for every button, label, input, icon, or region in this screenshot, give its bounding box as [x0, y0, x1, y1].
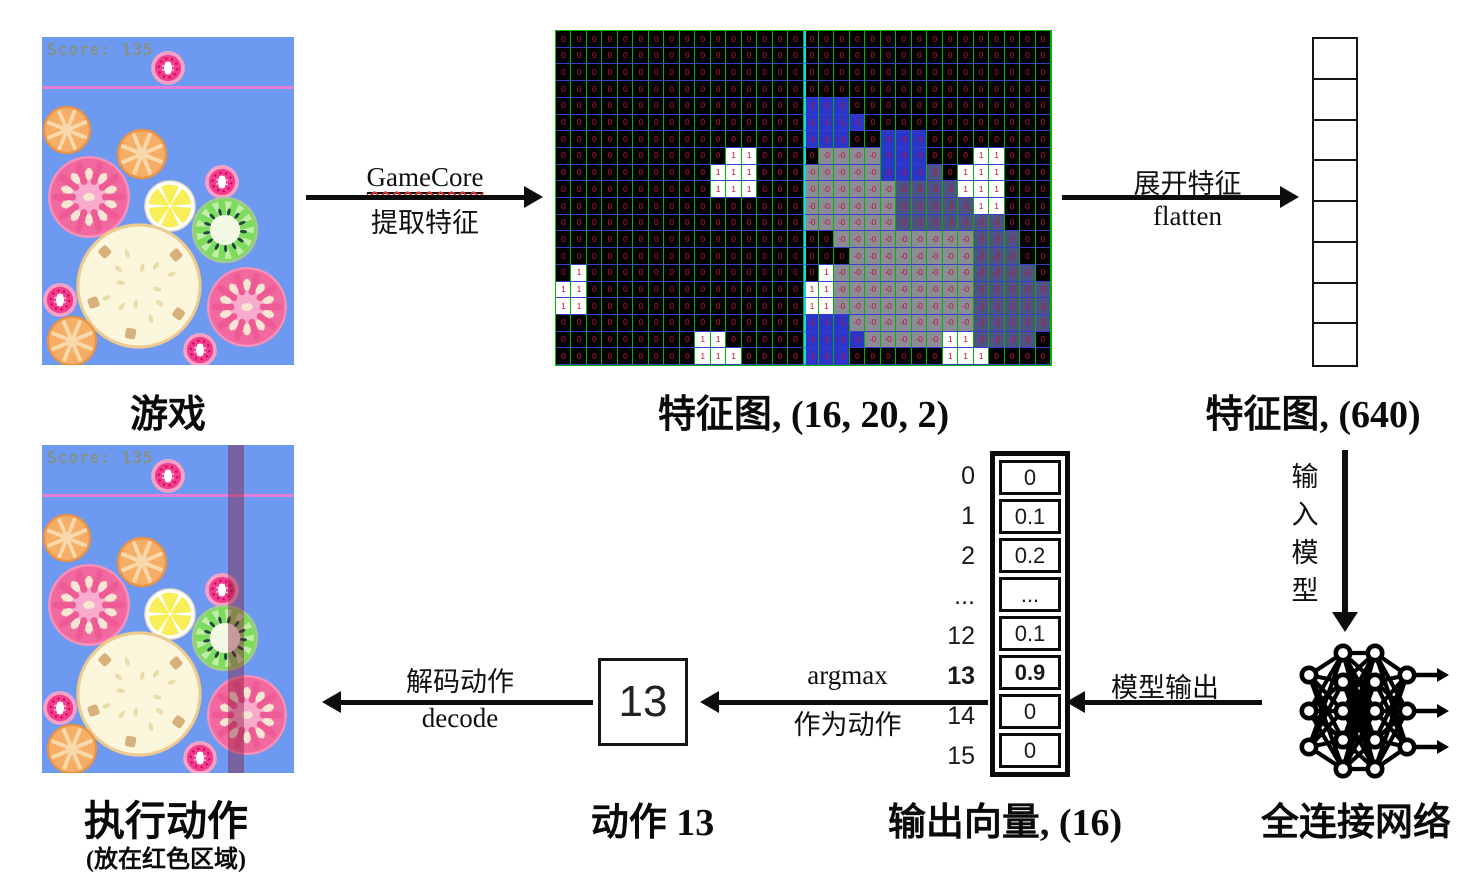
- feature-cell: 1: [571, 298, 586, 315]
- feature-cell: 0: [726, 248, 741, 265]
- feature-cell: -2: [989, 332, 1004, 349]
- feature-cell: 0: [757, 181, 772, 198]
- feature-cell: 0: [587, 282, 602, 299]
- feature-cell: -1: [819, 98, 834, 115]
- game-fruits: [42, 37, 294, 365]
- feature-cell: 0: [633, 215, 648, 232]
- feature-cell: 0: [804, 48, 819, 65]
- feature-cell: 0: [757, 64, 772, 81]
- feature-cell: 0: [695, 115, 710, 132]
- feature-cell: 0: [1036, 148, 1051, 165]
- feature-cell: 0: [1020, 131, 1035, 148]
- feature-cell: 0: [958, 31, 973, 48]
- feature-cell: 0: [602, 282, 617, 299]
- feature-cell: 0: [912, 48, 927, 65]
- feature-cell: -0: [819, 215, 834, 232]
- feature-cell: 0: [695, 231, 710, 248]
- feature-cell: -0: [865, 148, 880, 165]
- feature-cell: 0: [633, 282, 648, 299]
- feature-cell: 0: [680, 48, 695, 65]
- feature-cell: -0: [958, 315, 973, 332]
- feature-cell: 0: [742, 215, 757, 232]
- feature-cell: -1: [834, 348, 849, 365]
- feature-cell: -0: [834, 282, 849, 299]
- feature-cell: 0: [742, 115, 757, 132]
- feature-cell: 0: [618, 231, 633, 248]
- feature-cell: 0: [773, 348, 788, 365]
- feature-cell: 0: [618, 215, 633, 232]
- feature-cell: 0: [618, 98, 633, 115]
- feature-cell: 0: [757, 231, 772, 248]
- feature-cell: -0: [804, 198, 819, 215]
- feature-cell: -0: [943, 298, 958, 315]
- feature-cell: 0: [1020, 64, 1035, 81]
- feature-cell: 0: [773, 31, 788, 48]
- argmax-arrow-label-bottom: 作为动作: [750, 703, 945, 742]
- feature-cell: 0: [788, 282, 803, 299]
- feature-cell: -0: [850, 248, 865, 265]
- feature-cell: -0: [943, 265, 958, 282]
- feature-cell: 0: [664, 332, 679, 349]
- feature-cell: -1: [834, 332, 849, 349]
- feature-cell: -0: [912, 298, 927, 315]
- feature-cell: -0: [865, 332, 880, 349]
- feature-cell: -0: [958, 265, 973, 282]
- feature-cell: 0: [618, 265, 633, 282]
- feature-cell: 0: [602, 81, 617, 98]
- feature-cell: 0: [649, 131, 664, 148]
- gamecore-text: GameCore: [367, 162, 484, 194]
- feature-cell: 0: [680, 64, 695, 81]
- feature-cell: 1: [571, 265, 586, 282]
- feature-cell: 0: [711, 265, 726, 282]
- feature-cell: 0: [912, 81, 927, 98]
- feature-cell: 0: [664, 181, 679, 198]
- feature-cell: 0: [788, 298, 803, 315]
- feature-cell: -1: [850, 332, 865, 349]
- feature-cell: 0: [633, 64, 648, 81]
- feature-cell: 0: [742, 332, 757, 349]
- feature-cell: -2: [896, 181, 911, 198]
- feature-cell: 0: [788, 98, 803, 115]
- feature-cell: -1: [896, 131, 911, 148]
- feature-cell: 0: [896, 31, 911, 48]
- feature-cell: -2: [1036, 282, 1051, 299]
- feature-cell: 0: [927, 81, 942, 98]
- feature-cell: 0: [927, 348, 942, 365]
- feature-cell: -0: [850, 215, 865, 232]
- feature-cell: 0: [1005, 148, 1020, 165]
- feature-cell: -0: [865, 315, 880, 332]
- feature-cell: -0: [912, 231, 927, 248]
- feature-cell: 0: [695, 64, 710, 81]
- feature-cell: 0: [757, 215, 772, 232]
- feature-cell: 0: [618, 115, 633, 132]
- feature-cell: 0: [742, 248, 757, 265]
- feature-cell: 0: [865, 81, 880, 98]
- feature-cell: 0: [680, 148, 695, 165]
- feature-cell: -0: [881, 332, 896, 349]
- feature-cell: 0: [602, 64, 617, 81]
- feature-cell: 0: [664, 298, 679, 315]
- feature-cell: 0: [788, 181, 803, 198]
- feature-cell: 1: [943, 348, 958, 365]
- feature-cell: -0: [943, 248, 958, 265]
- feature-cell: 0: [571, 248, 586, 265]
- feature-cell: 0: [757, 165, 772, 182]
- feature-cell: 0: [927, 115, 942, 132]
- feature-cell: -0: [943, 282, 958, 299]
- feature-cell: 0: [788, 265, 803, 282]
- feature-cell: 0: [711, 315, 726, 332]
- feature-cell: 0: [571, 131, 586, 148]
- feature-cell: 0: [989, 48, 1004, 65]
- feature-cell: 0: [618, 148, 633, 165]
- feature-cell: 0: [618, 31, 633, 48]
- feature-cell: 0: [711, 81, 726, 98]
- feature-cell: 0: [1005, 64, 1020, 81]
- feature-cell: 0: [912, 98, 927, 115]
- feature-cell: -0: [834, 165, 849, 182]
- extract-arrow-label-top: GameCore: [330, 162, 520, 193]
- feature-cell: 0: [711, 282, 726, 299]
- feature-cell: -0: [865, 298, 880, 315]
- feature-cell: -2: [989, 298, 1004, 315]
- feature-cell: 0: [1005, 31, 1020, 48]
- feature-cell: 0: [649, 148, 664, 165]
- feature-cell: 0: [788, 198, 803, 215]
- feature-cell: 0: [989, 348, 1004, 365]
- feature-cell: -0: [865, 165, 880, 182]
- feature-cell: 0: [943, 98, 958, 115]
- output-vector-cell: 0.9: [999, 655, 1061, 690]
- feature-cell: 0: [649, 231, 664, 248]
- feature-cell: 0: [1036, 332, 1051, 349]
- feature-cell: 0: [1005, 348, 1020, 365]
- output-vector-index: 1: [905, 498, 975, 538]
- feature-cell: 0: [587, 181, 602, 198]
- feature-cell: 0: [850, 348, 865, 365]
- feature-cell: -0: [927, 298, 942, 315]
- feature-cell: 1: [958, 181, 973, 198]
- feature-cell: -2: [989, 265, 1004, 282]
- feature-cell: 1: [711, 181, 726, 198]
- feature-cell: -0: [881, 248, 896, 265]
- feature-cell: -0: [896, 332, 911, 349]
- flat-vector-cell: [1314, 121, 1356, 162]
- feature-cell: 0: [618, 131, 633, 148]
- feature-cell: 0: [834, 31, 849, 48]
- feature-cell: -0: [850, 165, 865, 182]
- feature-cell: 0: [571, 165, 586, 182]
- feature-cell: 0: [819, 64, 834, 81]
- feature-cell: 0: [633, 165, 648, 182]
- feature-cell: 0: [958, 115, 973, 132]
- feature-cell: 0: [834, 64, 849, 81]
- feature-cell: -2: [912, 198, 927, 215]
- feature-cell: -0: [881, 298, 896, 315]
- feature-cell: -0: [896, 282, 911, 299]
- feature-cell: 0: [695, 31, 710, 48]
- feature-cell: 0: [618, 315, 633, 332]
- flat-vector-cell: [1314, 202, 1356, 243]
- feature-cell: 0: [1005, 181, 1020, 198]
- feature-cell: -0: [834, 148, 849, 165]
- feature-cell: 0: [819, 231, 834, 248]
- feature-cell: 0: [804, 248, 819, 265]
- feature-cell: 1: [742, 165, 757, 182]
- feature-cell: 0: [757, 332, 772, 349]
- feature-cell: -2: [1020, 315, 1035, 332]
- feature-cell: 0: [1036, 181, 1051, 198]
- feature-cell: 0: [757, 248, 772, 265]
- feature-cell: 0: [927, 31, 942, 48]
- feature-cell: -2: [958, 198, 973, 215]
- feature-cell: 0: [1036, 198, 1051, 215]
- feature-cell: 0: [571, 231, 586, 248]
- feature-cell: 1: [989, 148, 1004, 165]
- feature-cell: 0: [602, 231, 617, 248]
- feature-cell: -0: [819, 198, 834, 215]
- feature-cell: -1: [881, 148, 896, 165]
- feature-cell: 0: [773, 131, 788, 148]
- feature-cell: -1: [912, 165, 927, 182]
- feature-cell: 0: [974, 48, 989, 65]
- feature-cell: 0: [773, 81, 788, 98]
- feature-cell: 0: [1020, 165, 1035, 182]
- feature-cell: 0: [649, 98, 664, 115]
- feature-cell: -1: [804, 315, 819, 332]
- feature-cell: 0: [711, 298, 726, 315]
- feature-cell: 0: [943, 81, 958, 98]
- feature-cell: 0: [788, 315, 803, 332]
- feature-cell: -2: [989, 248, 1004, 265]
- feature-cell: 0: [958, 131, 973, 148]
- feature-cell: 0: [804, 81, 819, 98]
- feature-cell: 0: [974, 98, 989, 115]
- feature-cell: 0: [881, 98, 896, 115]
- feature-cell: 0: [757, 48, 772, 65]
- feature-cell: 0: [587, 198, 602, 215]
- feature-cell: 0: [1036, 348, 1051, 365]
- feature-cell: 0: [881, 348, 896, 365]
- feature-cell: 0: [773, 315, 788, 332]
- feature-cell: 0: [571, 98, 586, 115]
- feature-cell: 0: [1005, 98, 1020, 115]
- feature-cell: 0: [773, 198, 788, 215]
- feature-cell: 0: [664, 215, 679, 232]
- feature-cell: 0: [1036, 31, 1051, 48]
- feature-cell: 0: [726, 81, 741, 98]
- feature-cell: 0: [633, 131, 648, 148]
- feature-cell: 0: [773, 265, 788, 282]
- feature-cell: 0: [742, 282, 757, 299]
- feature-cell: -2: [974, 265, 989, 282]
- feature-cell: 1: [711, 348, 726, 365]
- feature-cell: 0: [958, 98, 973, 115]
- feature-cell: 1: [695, 348, 710, 365]
- feature-cell: 0: [556, 231, 571, 248]
- feature-cell: -2: [974, 298, 989, 315]
- feature-cell: 0: [571, 332, 586, 349]
- feature-cell: 0: [927, 48, 942, 65]
- feature-cell: 0: [834, 248, 849, 265]
- feature-cell: 0: [834, 81, 849, 98]
- feature-cell: 1: [556, 282, 571, 299]
- feature-cell: -0: [927, 248, 942, 265]
- feature-cell: 0: [974, 81, 989, 98]
- feature-cell: 0: [602, 148, 617, 165]
- feature-cell: 1: [695, 332, 710, 349]
- feature-cell: -0: [881, 181, 896, 198]
- feature-cell: 0: [602, 131, 617, 148]
- feature-cell: 0: [865, 348, 880, 365]
- feature-cell: 0: [1036, 215, 1051, 232]
- feature-cell: 0: [556, 198, 571, 215]
- feature-cell: -1: [834, 115, 849, 132]
- output-vector-cell: 0: [999, 733, 1061, 768]
- feature-cell: 0: [618, 248, 633, 265]
- feature-cell: -0: [850, 298, 865, 315]
- feature-cell: 0: [633, 148, 648, 165]
- feature-cell: 0: [757, 315, 772, 332]
- feature-cell: -0: [834, 298, 849, 315]
- feature-cell: -0: [850, 315, 865, 332]
- feature-cell: -1: [819, 115, 834, 132]
- caption-game: 游戏: [42, 383, 294, 438]
- feature-cell: 0: [571, 64, 586, 81]
- feature-cell: 0: [587, 315, 602, 332]
- feature-cell: -0: [958, 282, 973, 299]
- feature-cell: 0: [1005, 81, 1020, 98]
- feature-cell: 0: [695, 248, 710, 265]
- feature-cell: 0: [773, 298, 788, 315]
- feature-cell: 0: [927, 64, 942, 81]
- feature-cell: 0: [587, 81, 602, 98]
- feature-cell: 0: [726, 215, 741, 232]
- feature-cell: -0: [927, 231, 942, 248]
- feature-cell: 0: [571, 115, 586, 132]
- feature-cell: 1: [742, 181, 757, 198]
- feature-cell: 0: [726, 332, 741, 349]
- feature-cell: -2: [1020, 265, 1035, 282]
- feature-cell: 0: [773, 248, 788, 265]
- feature-cell: 0: [602, 31, 617, 48]
- score-text: Score: 135: [47, 40, 153, 59]
- feature-cell: 0: [726, 98, 741, 115]
- feature-cell: 0: [556, 81, 571, 98]
- feature-cell: 0: [649, 348, 664, 365]
- feature-cell: 0: [556, 248, 571, 265]
- feature-cell: -2: [1020, 282, 1035, 299]
- feature-cell: -1: [834, 315, 849, 332]
- feature-cell: 0: [602, 265, 617, 282]
- feature-cell: 0: [664, 315, 679, 332]
- output-vector-cell: 0: [999, 694, 1061, 729]
- feature-cell: 0: [587, 298, 602, 315]
- feature-cell: 0: [788, 31, 803, 48]
- feature-cell: 0: [649, 81, 664, 98]
- feature-cell: 0: [757, 282, 772, 299]
- feature-cell: 0: [602, 215, 617, 232]
- feature-cell: 0: [788, 115, 803, 132]
- feature-cell: 0: [819, 31, 834, 48]
- feature-cell: -1: [804, 131, 819, 148]
- feature-cell: 1: [989, 198, 1004, 215]
- feature-cell: 0: [912, 64, 927, 81]
- feature-cell: 0: [664, 148, 679, 165]
- feature-cell: 0: [773, 215, 788, 232]
- feature-cell: 0: [989, 81, 1004, 98]
- feature-cell: 0: [757, 148, 772, 165]
- feature-cell: 0: [664, 248, 679, 265]
- feature-cell: 0: [850, 31, 865, 48]
- feature-cell: -2: [974, 231, 989, 248]
- feature-cell: 0: [680, 265, 695, 282]
- feature-cell: 0: [850, 131, 865, 148]
- feature-cell: 1: [819, 265, 834, 282]
- feature-cell: 0: [587, 31, 602, 48]
- output-vector-cell: 0.1: [999, 616, 1061, 651]
- flat-feature-vector: [1312, 37, 1358, 367]
- feature-cell: 0: [649, 31, 664, 48]
- feature-cell: -1: [819, 332, 834, 349]
- feature-cell: -2: [1005, 248, 1020, 265]
- feature-cell: 0: [788, 48, 803, 65]
- feature-cell: 0: [865, 115, 880, 132]
- feature-cell: 0: [587, 64, 602, 81]
- feature-cell: 0: [680, 231, 695, 248]
- feature-cell: 1: [958, 348, 973, 365]
- feature-cell: -2: [943, 181, 958, 198]
- feature-cell: -0: [896, 315, 911, 332]
- feature-cell: 0: [633, 181, 648, 198]
- feature-cell: 0: [618, 282, 633, 299]
- feature-cell: 0: [819, 48, 834, 65]
- feature-cell: 0: [865, 48, 880, 65]
- feature-cell: 0: [896, 98, 911, 115]
- feature-cell: -0: [850, 282, 865, 299]
- feature-cell: 1: [804, 282, 819, 299]
- feature-cell: 0: [602, 248, 617, 265]
- feature-cell: 0: [649, 265, 664, 282]
- feature-cell: 0: [773, 231, 788, 248]
- feature-cell: 0: [711, 98, 726, 115]
- feature-cell: 0: [649, 215, 664, 232]
- feature-cell: 0: [633, 248, 648, 265]
- feature-cell: -0: [819, 181, 834, 198]
- feature-cell: -0: [850, 265, 865, 282]
- feature-cell: 0: [726, 282, 741, 299]
- feature-cell: 0: [680, 115, 695, 132]
- feature-cell: 0: [819, 248, 834, 265]
- feature-cell: -2: [1020, 298, 1035, 315]
- feature-cell: -0: [850, 181, 865, 198]
- feature-cell: 0: [896, 64, 911, 81]
- feature-cell: 0: [773, 181, 788, 198]
- feature-cell: -0: [927, 332, 942, 349]
- game-screenshot-executed: Score: 135: [42, 445, 294, 773]
- feature-cell: 0: [695, 131, 710, 148]
- feature-cell: -2: [1005, 298, 1020, 315]
- feature-cell: 0: [726, 315, 741, 332]
- feature-cell: 0: [587, 98, 602, 115]
- feature-cell: 0: [788, 148, 803, 165]
- feature-cell: -0: [804, 215, 819, 232]
- feature-cell: 0: [1020, 198, 1035, 215]
- feature-cell: 0: [896, 348, 911, 365]
- flat-vector-cell: [1314, 243, 1356, 284]
